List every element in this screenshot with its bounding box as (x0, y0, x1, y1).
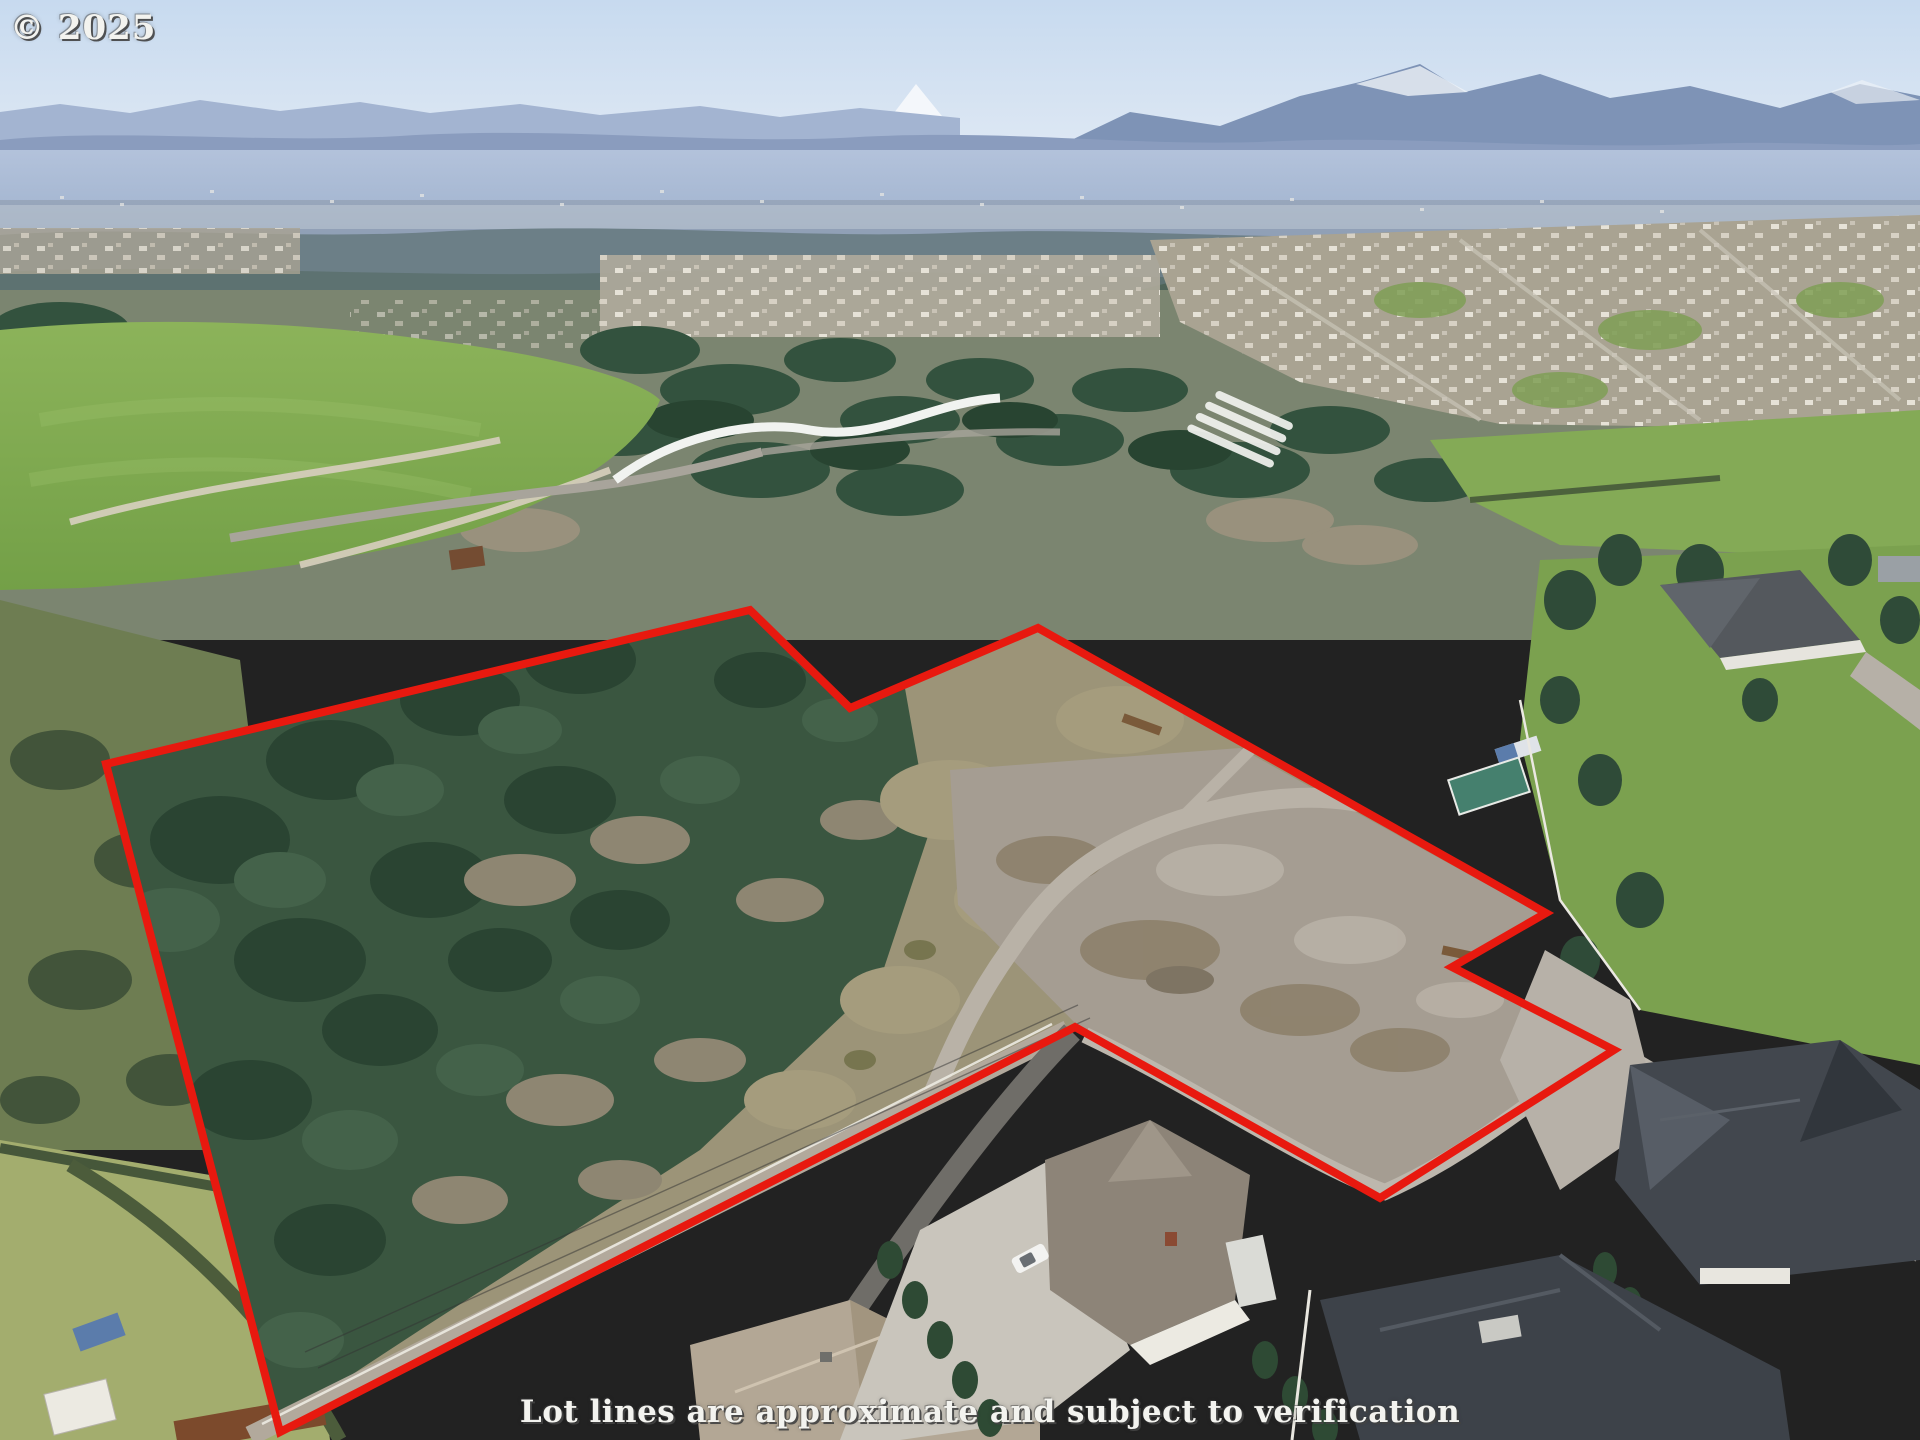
aerial-photo: © 2025 Lot lines are approximate and sub… (0, 0, 1920, 1440)
landscape-canvas (0, 0, 1920, 1440)
disclaimer-watermark: Lot lines are approximate and subject to… (0, 1394, 1920, 1430)
boat-and-sport-court (1448, 736, 1541, 815)
farmhouse (840, 1120, 1276, 1440)
copyright-watermark: © 2025 (10, 8, 156, 48)
